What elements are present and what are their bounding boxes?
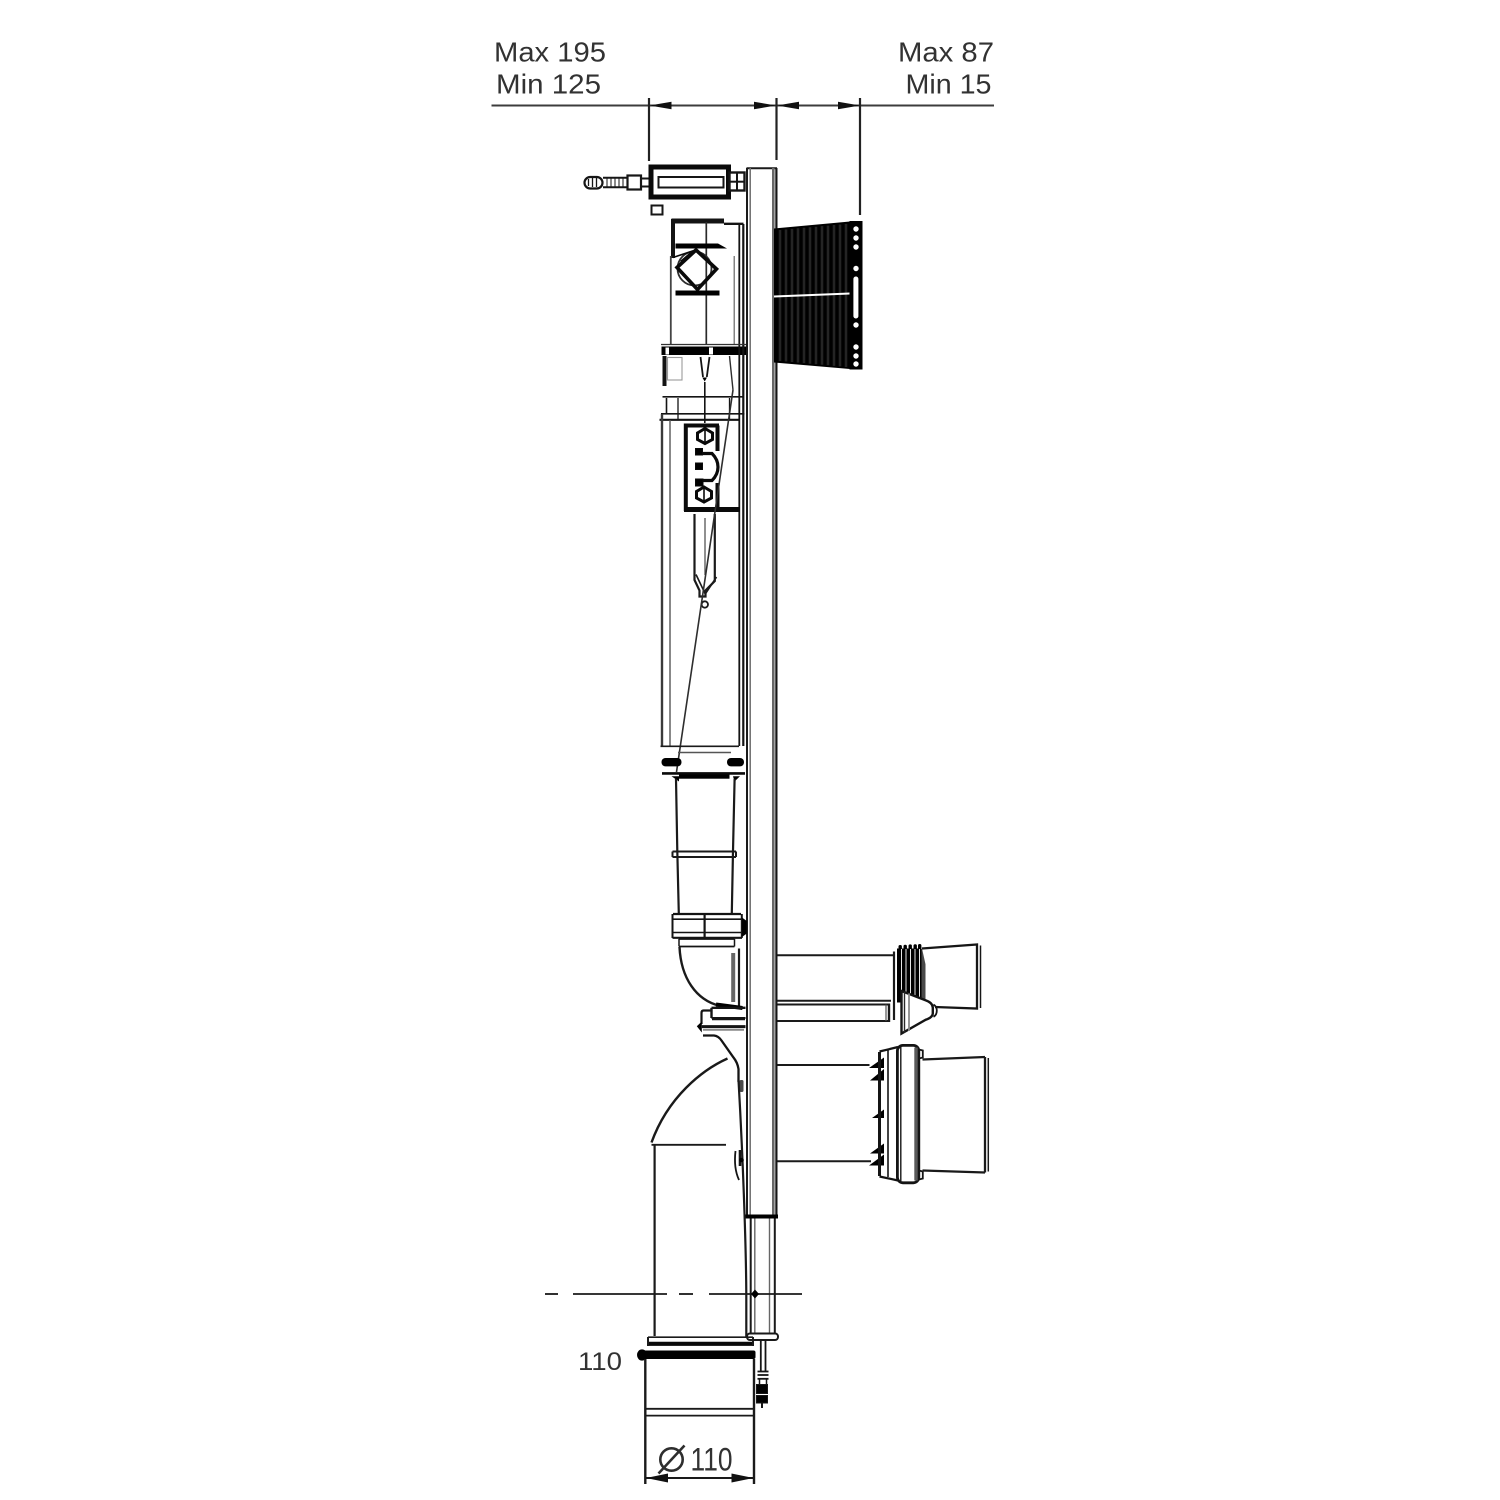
svg-text:110: 110 [578,1348,622,1376]
svg-text:110: 110 [691,1442,733,1478]
svg-text:Min 125: Min 125 [496,69,601,100]
svg-text:Max 195: Max 195 [494,37,606,68]
svg-text:Min 15: Min 15 [906,69,992,100]
svg-text:Max 87: Max 87 [898,37,994,68]
